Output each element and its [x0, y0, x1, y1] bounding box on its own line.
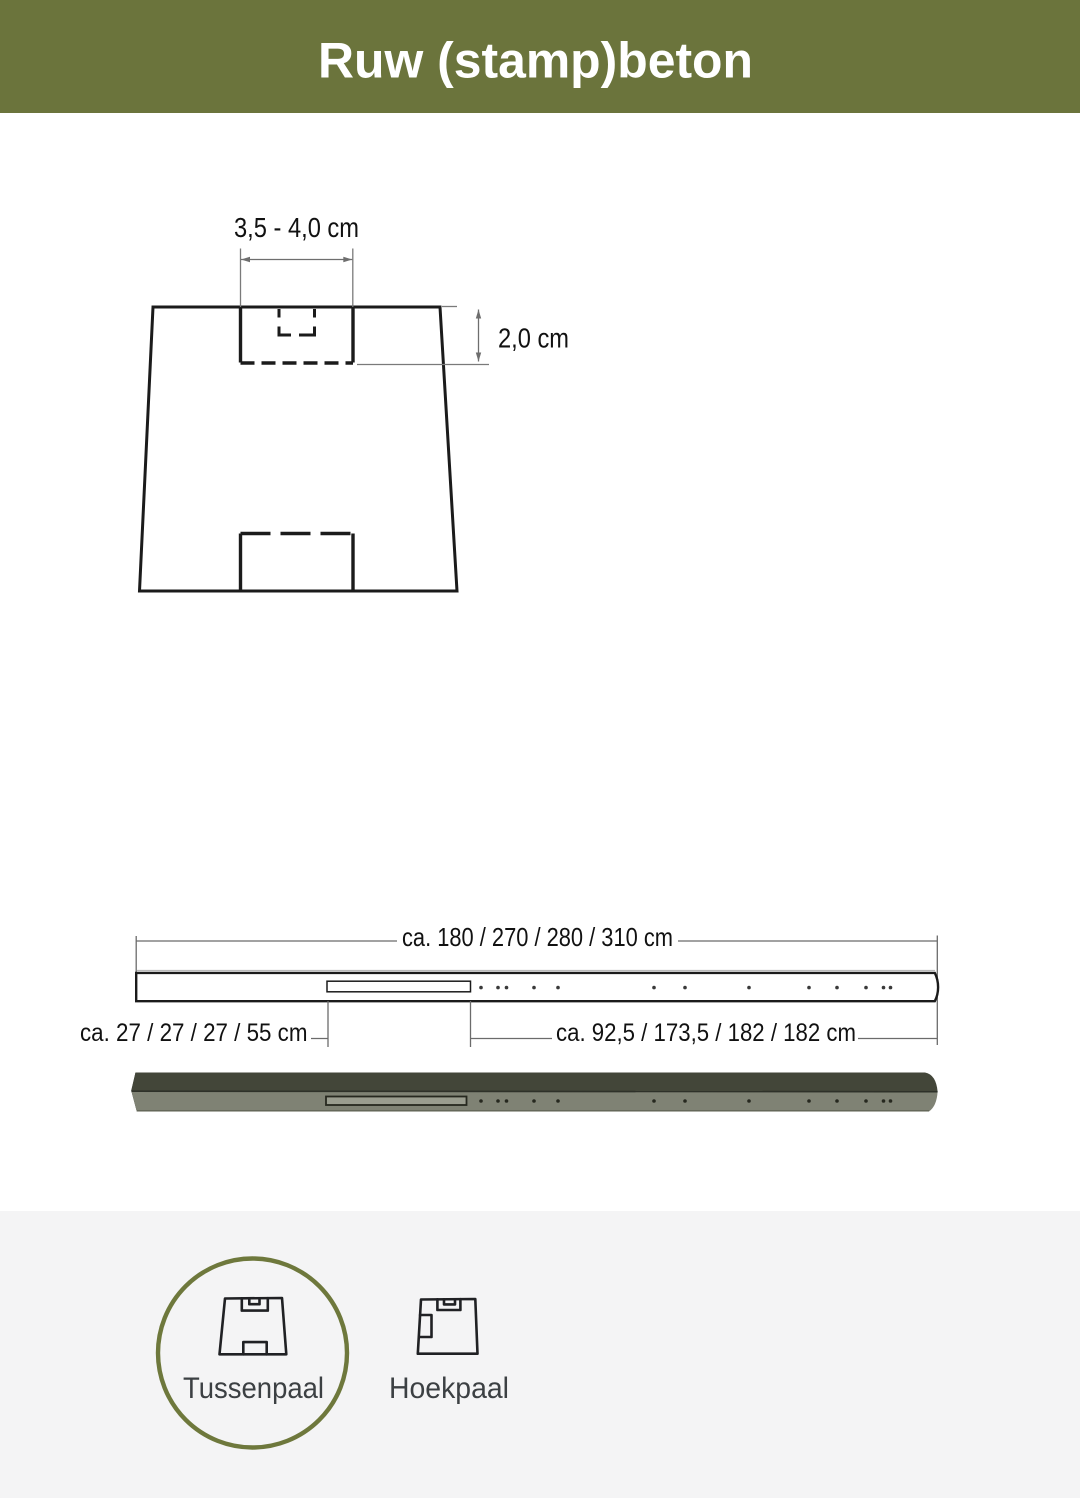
svg-text:Hoekpaal: Hoekpaal	[389, 1372, 509, 1405]
svg-text:Tussenpaal: Tussenpaal	[183, 1372, 324, 1405]
svg-text:2,0 cm: 2,0 cm	[498, 323, 569, 354]
svg-text:ca. 180 / 270 / 280 / 310 cm: ca. 180 / 270 / 280 / 310 cm	[402, 922, 673, 952]
svg-text:ca. 92,5 / 173,5 / 182 / 182 c: ca. 92,5 / 173,5 / 182 / 182 cm	[556, 1019, 856, 1047]
svg-text:ca. 27 / 27 / 27 / 55 cm: ca. 27 / 27 / 27 / 55 cm	[80, 1019, 308, 1047]
svg-text:3,5 - 4,0 cm: 3,5 - 4,0 cm	[234, 212, 359, 243]
